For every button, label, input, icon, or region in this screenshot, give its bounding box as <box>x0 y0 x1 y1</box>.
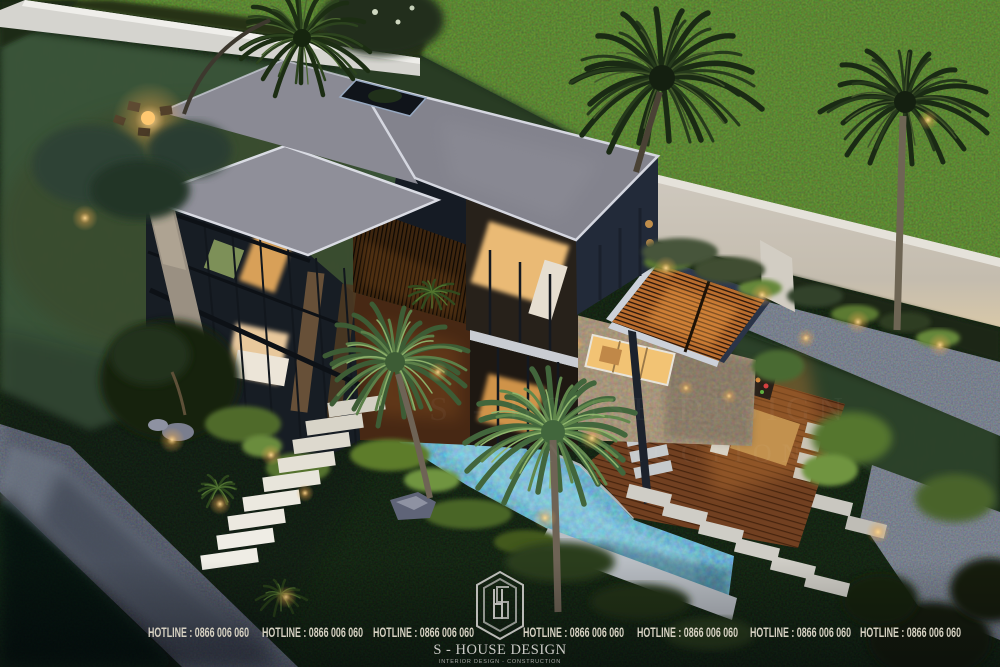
svg-text:CONSTRUCTION: CONSTRUCTION <box>490 439 811 468</box>
svg-text:INTERIOR DESIGN - CONSTRUCTION: INTERIOR DESIGN - CONSTRUCTION <box>439 659 561 665</box>
svg-text:S - HOUSE DESIGN: S - HOUSE DESIGN <box>429 391 851 428</box>
svg-text:S - HOUSE DESIGN: S - HOUSE DESIGN <box>433 642 566 658</box>
svg-text:HOTLINE : 0866 006 060: HOTLINE : 0866 006 060 <box>860 625 961 640</box>
svg-text:HOTLINE : 0866 006 060: HOTLINE : 0866 006 060 <box>750 625 851 640</box>
svg-text:HOTLINE : 0866 006 060: HOTLINE : 0866 006 060 <box>523 625 624 640</box>
svg-text:HOTLINE : 0866 006 060: HOTLINE : 0866 006 060 <box>148 625 249 640</box>
svg-text:HOTLINE : 0866 006 060: HOTLINE : 0866 006 060 <box>373 625 474 640</box>
svg-text:HOTLINE : 0866 006 060: HOTLINE : 0866 006 060 <box>262 625 363 640</box>
svg-text:HOTLINE : 0866 006 060: HOTLINE : 0866 006 060 <box>637 625 738 640</box>
